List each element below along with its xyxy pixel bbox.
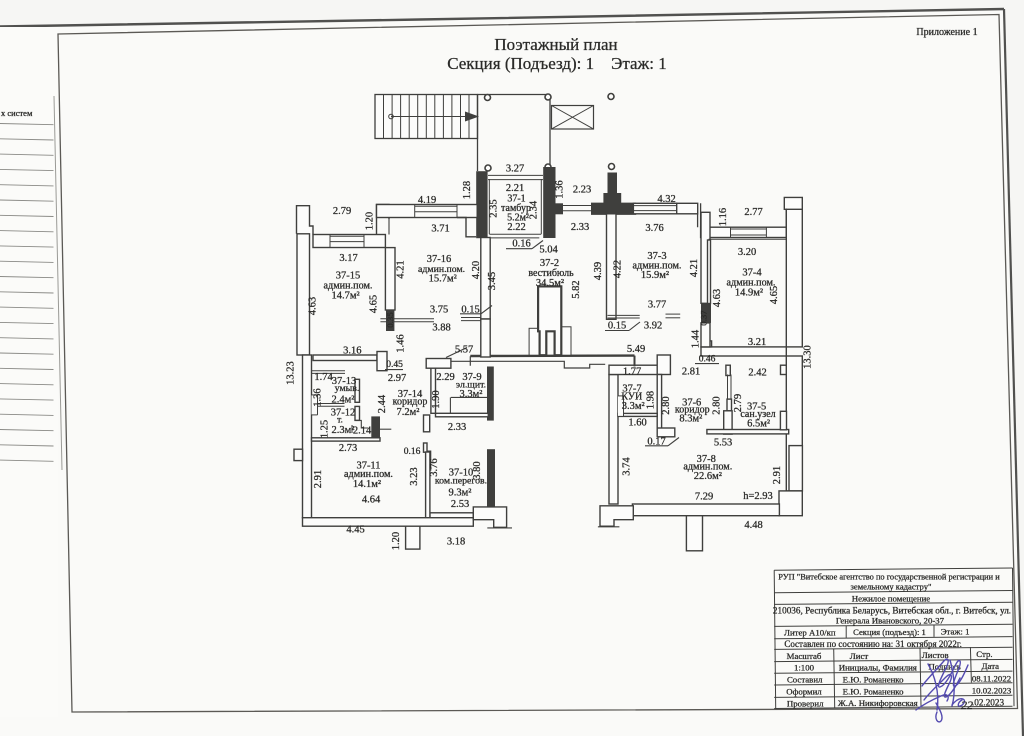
- svg-text:1.74: 1.74: [314, 372, 333, 383]
- svg-text:1.90: 1.90: [431, 390, 442, 408]
- svg-text:3.45: 3.45: [487, 272, 498, 290]
- svg-text:0.16: 0.16: [404, 447, 421, 457]
- svg-text:0.45: 0.45: [386, 360, 403, 370]
- svg-text:10.02.2023: 10.02.2023: [972, 686, 1012, 696]
- svg-text:6.5м²: 6.5м²: [747, 419, 770, 430]
- svg-text:0.35: 0.35: [385, 312, 395, 328]
- svg-text:1.77: 1.77: [623, 367, 641, 378]
- svg-text:0.15: 0.15: [461, 304, 479, 315]
- svg-text:Этаж: 1: Этаж: 1: [941, 627, 970, 637]
- svg-text:Стр.: Стр.: [976, 649, 992, 659]
- svg-text:22: 22: [961, 698, 973, 712]
- svg-text:4.63: 4.63: [712, 289, 723, 307]
- svg-text:2.14: 2.14: [353, 426, 372, 437]
- svg-text:1.28: 1.28: [462, 181, 473, 199]
- svg-text:8.3м²: 8.3м²: [679, 413, 702, 424]
- svg-text:Дата: Дата: [982, 661, 1000, 671]
- svg-text:ком.перегов.: ком.перегов.: [435, 476, 487, 487]
- svg-text:3.77: 3.77: [648, 300, 666, 311]
- svg-text:1.25: 1.25: [320, 420, 331, 438]
- svg-text:4.32: 4.32: [657, 194, 675, 205]
- svg-text:4.48: 4.48: [744, 520, 762, 531]
- svg-text:3.71: 3.71: [431, 224, 449, 235]
- svg-text:15.9м²: 15.9м²: [641, 270, 669, 281]
- svg-text:4.21: 4.21: [396, 260, 407, 278]
- svg-text:3.88: 3.88: [432, 323, 450, 334]
- svg-text:3.16: 3.16: [343, 346, 361, 357]
- svg-text:2.33: 2.33: [571, 222, 589, 233]
- svg-text:14.7м²: 14.7м²: [332, 290, 360, 301]
- svg-text:1.46: 1.46: [396, 334, 407, 352]
- svg-text:37-12: 37-12: [331, 408, 356, 419]
- svg-text:5.53: 5.53: [714, 438, 732, 449]
- svg-text:2.44: 2.44: [377, 394, 388, 413]
- svg-text:Составлен по состоянию на: 31: Составлен по состоянию на: 31 октября 20…: [784, 639, 962, 649]
- svg-text:2.97: 2.97: [388, 373, 406, 384]
- svg-text:08.11.2022: 08.11.2022: [972, 674, 1011, 684]
- svg-text:Е.Ю. Романенко: Е.Ю. Романенко: [843, 674, 904, 684]
- svg-text:13.23: 13.23: [286, 361, 297, 385]
- svg-text:0.17: 0.17: [647, 437, 665, 448]
- svg-text:2.33: 2.33: [448, 422, 466, 433]
- svg-text:1.20: 1.20: [391, 532, 402, 550]
- svg-text:3.23: 3.23: [409, 467, 420, 485]
- svg-text:0.15: 0.15: [608, 320, 626, 331]
- svg-text:14.1м²: 14.1м²: [353, 479, 381, 490]
- svg-text:3.75: 3.75: [430, 304, 448, 315]
- svg-text:2.80: 2.80: [661, 396, 672, 414]
- svg-text:2.21: 2.21: [506, 183, 524, 194]
- svg-text:3.18: 3.18: [447, 537, 465, 548]
- svg-text:4.63: 4.63: [308, 297, 319, 315]
- svg-text:Приложение 1: Приложение 1: [916, 27, 977, 38]
- svg-text:3.92: 3.92: [644, 321, 662, 332]
- svg-text:Лист: Лист: [850, 651, 869, 661]
- svg-text:3.17: 3.17: [339, 253, 357, 264]
- svg-text:3.76: 3.76: [429, 458, 440, 476]
- svg-text:15.7м²: 15.7м²: [429, 274, 457, 285]
- svg-text:т.: т.: [337, 415, 343, 426]
- svg-text:14.9м²: 14.9м²: [735, 288, 763, 299]
- svg-text:Проверил: Проверил: [787, 699, 824, 709]
- svg-text:.02.2023: .02.2023: [972, 698, 1005, 708]
- svg-text:0.37: 0.37: [699, 310, 709, 326]
- svg-text:4.64: 4.64: [362, 495, 381, 506]
- svg-text:Ж.А. Никифоровская: Ж.А. Никифоровская: [838, 698, 918, 708]
- svg-text:Секция (подъезд): 1: Секция (подъезд): 1: [853, 627, 926, 637]
- svg-text:13.30: 13.30: [803, 345, 814, 369]
- svg-text:2.35: 2.35: [489, 199, 500, 217]
- svg-text:4.45: 4.45: [346, 525, 364, 536]
- svg-text:2.4м²: 2.4м²: [332, 395, 355, 406]
- svg-text:2.29: 2.29: [436, 372, 454, 383]
- svg-text:коридор: коридор: [393, 396, 428, 407]
- svg-text:3.20: 3.20: [738, 247, 756, 258]
- svg-text:Оформил: Оформил: [786, 687, 822, 697]
- svg-text:1.36: 1.36: [313, 388, 324, 406]
- svg-text:5.57: 5.57: [455, 345, 473, 356]
- svg-text:2.3м²: 2.3м²: [332, 425, 355, 436]
- svg-text:2.80: 2.80: [712, 396, 723, 414]
- svg-text:Генерала Ивановского, 20-37: Генерала Ивановского, 20-37: [836, 616, 945, 626]
- svg-text:1.16: 1.16: [718, 208, 729, 226]
- svg-text:РУП "Витебское агентство по го: РУП "Витебское агентство по государствен…: [778, 573, 1000, 582]
- svg-text:0.16: 0.16: [512, 238, 530, 249]
- svg-text:1.36: 1.36: [555, 180, 566, 198]
- svg-text:2.23: 2.23: [573, 185, 591, 196]
- svg-text:3.3м²: 3.3м²: [460, 389, 483, 400]
- svg-text:9.3м²: 9.3м²: [449, 488, 472, 499]
- svg-text:Листов: Листов: [922, 650, 949, 660]
- svg-text:7.29: 7.29: [695, 492, 713, 503]
- svg-text:Масштаб: Масштаб: [787, 651, 822, 661]
- svg-text:умыв.: умыв.: [335, 383, 360, 394]
- svg-text:2.22: 2.22: [507, 222, 525, 233]
- svg-text:3.27: 3.27: [506, 164, 524, 175]
- svg-text:Нежилое помещение: Нежилое помещение: [852, 594, 931, 604]
- svg-text:4.21: 4.21: [689, 259, 700, 277]
- svg-text:3.76: 3.76: [645, 223, 663, 234]
- svg-text:2.77: 2.77: [744, 207, 762, 218]
- svg-text:7.2м²: 7.2м²: [397, 407, 420, 418]
- svg-text:22.6м²: 22.6м²: [694, 471, 722, 482]
- svg-text:3.21: 3.21: [748, 337, 766, 348]
- svg-text:земельному кадастру": земельному кадастру": [851, 582, 932, 592]
- svg-text:210036, Республика Беларусь, В: 210036, Республика Беларусь, Витебская о…: [773, 606, 1011, 616]
- svg-text:4.39: 4.39: [593, 262, 604, 280]
- svg-text:34.5м²: 34.5м²: [536, 278, 564, 289]
- svg-text:0.46: 0.46: [699, 355, 716, 365]
- svg-text:Е.Ю. Романенко: Е.Ю. Романенко: [843, 686, 904, 696]
- svg-text:1:100: 1:100: [794, 663, 815, 673]
- svg-text:2.79: 2.79: [333, 206, 351, 217]
- svg-text:4.20: 4.20: [471, 261, 482, 279]
- svg-text:4.19: 4.19: [418, 195, 436, 206]
- svg-text:2.91: 2.91: [772, 466, 783, 484]
- svg-text:1.44: 1.44: [691, 329, 702, 348]
- svg-text:3.74: 3.74: [622, 457, 633, 476]
- svg-text:5.04: 5.04: [539, 245, 558, 256]
- svg-text:2.42: 2.42: [748, 368, 766, 379]
- svg-text:х систем: х систем: [1, 108, 33, 118]
- svg-text:4.22: 4.22: [613, 260, 624, 278]
- svg-text:5.49: 5.49: [627, 344, 645, 355]
- svg-text:5.82: 5.82: [571, 280, 582, 298]
- svg-text:h=2.93: h=2.93: [743, 491, 773, 502]
- svg-text:Литер А10/кп: Литер А10/кп: [784, 628, 836, 638]
- svg-text:2.53: 2.53: [451, 499, 469, 510]
- svg-text:4.65: 4.65: [769, 286, 780, 304]
- svg-text:2.81: 2.81: [682, 366, 700, 377]
- svg-text:3.3м²: 3.3м²: [622, 401, 645, 412]
- svg-text:1.60: 1.60: [628, 418, 646, 429]
- svg-text:Поэтажный план: Поэтажный план: [494, 35, 617, 54]
- svg-text:4.65: 4.65: [369, 295, 380, 313]
- svg-text:Составил: Составил: [787, 675, 823, 685]
- svg-text:2.91: 2.91: [313, 470, 324, 488]
- svg-text:Инициалы, Фамилия: Инициалы, Фамилия: [839, 662, 917, 672]
- svg-text:1.20: 1.20: [365, 212, 376, 230]
- svg-text:2.34: 2.34: [529, 200, 540, 219]
- svg-text:2.73: 2.73: [339, 443, 357, 454]
- svg-text:1.98: 1.98: [646, 391, 657, 409]
- svg-text:Секция (Подъезд): 1 Этаж: 1: Секция (Подъезд): 1 Этаж: 1: [447, 54, 667, 73]
